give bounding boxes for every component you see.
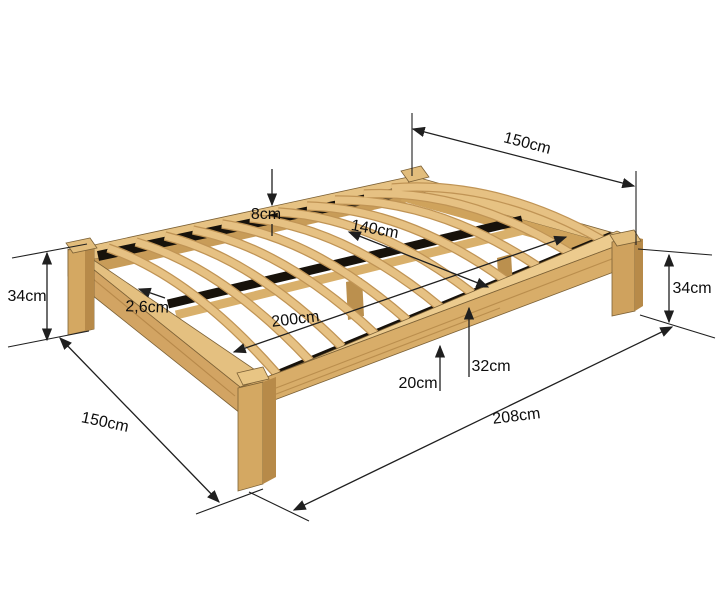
dim-label-outer-length: 208cm: [492, 405, 542, 428]
right-leg-side: [635, 237, 643, 311]
front-leg-side: [263, 377, 276, 484]
extension-line: [196, 489, 263, 514]
dim-label-right-height: 34cm: [672, 280, 711, 297]
dim-label-slat-height: 32cm: [471, 358, 510, 375]
dim-label-slat-thickness: 2,6cm: [125, 298, 169, 317]
front-leg: [238, 382, 263, 491]
dim-label-foot-width: 150cm: [80, 409, 131, 436]
bed-dimensions-figure: 150cm 8cm 140cm 2,6cm 34cm 200cm 32cm 20…: [0, 0, 720, 600]
extension-line: [638, 249, 712, 255]
dim-label-rail-rim: 8cm: [251, 206, 281, 223]
dim-label-clearance: 20cm: [398, 375, 437, 392]
extension-line: [640, 315, 715, 338]
dim-label-left-height: 34cm: [7, 288, 46, 305]
extension-line: [8, 331, 89, 347]
right-leg: [612, 237, 635, 316]
bed-frame-illustration: [66, 166, 643, 491]
diagram-canvas: 150cm 8cm 140cm 2,6cm 34cm 200cm 32cm 20…: [0, 0, 720, 600]
dim-label-inner-length: 200cm: [271, 308, 321, 331]
left-leg-side: [85, 245, 94, 331]
